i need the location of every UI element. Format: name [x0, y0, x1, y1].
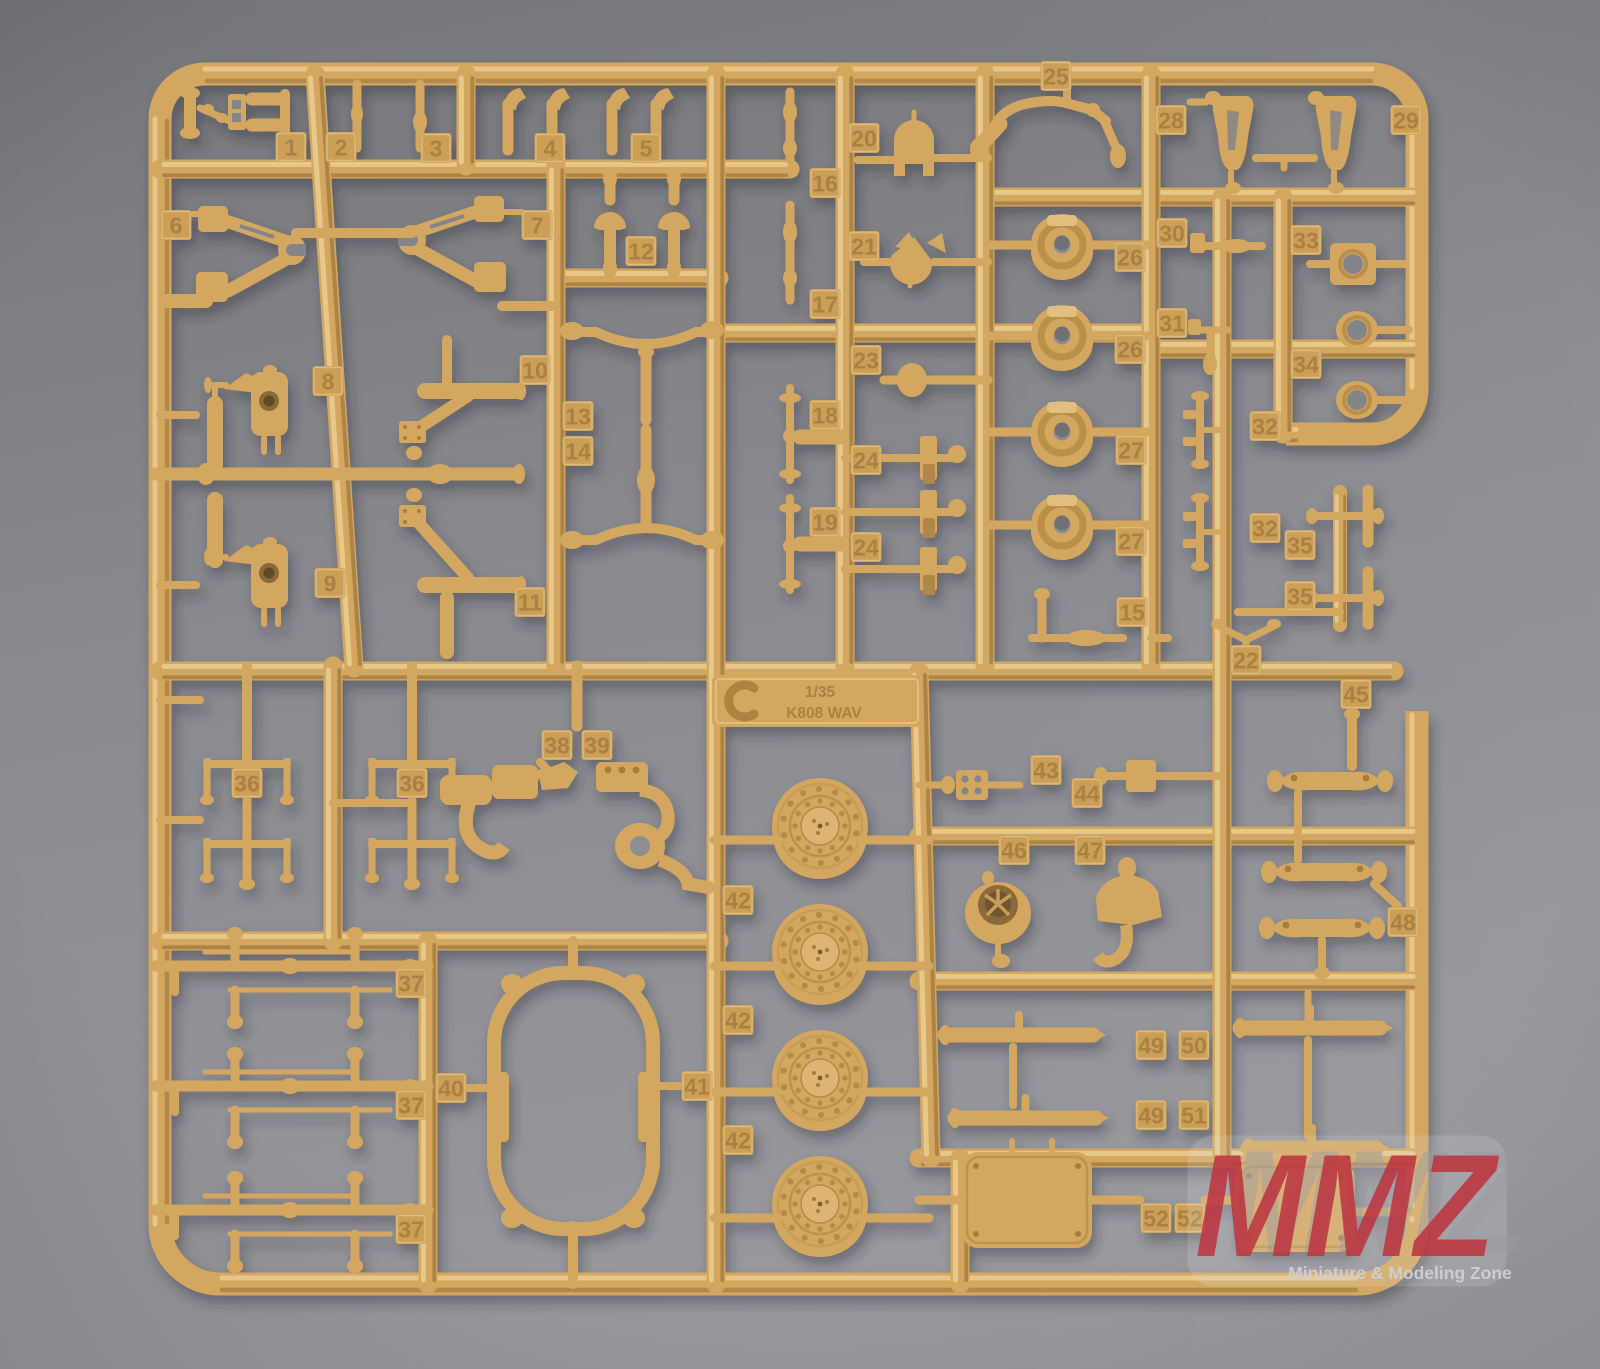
- svg-text:26: 26: [1117, 336, 1143, 362]
- svg-text:6: 6: [170, 212, 183, 238]
- svg-text:19: 19: [812, 509, 838, 535]
- svg-text:14: 14: [565, 438, 591, 464]
- svg-text:33: 33: [1293, 227, 1319, 253]
- svg-text:50: 50: [1181, 1032, 1207, 1058]
- svg-text:37: 37: [398, 1092, 424, 1118]
- svg-text:41: 41: [684, 1073, 710, 1099]
- svg-text:24: 24: [853, 534, 879, 560]
- svg-text:27: 27: [1118, 528, 1144, 554]
- svg-text:52: 52: [1143, 1205, 1169, 1231]
- svg-text:27: 27: [1118, 437, 1144, 463]
- svg-text:16: 16: [812, 170, 838, 196]
- svg-text:34: 34: [1293, 351, 1319, 377]
- svg-text:11: 11: [518, 589, 543, 615]
- svg-text:20: 20: [851, 125, 877, 151]
- svg-text:7: 7: [531, 212, 544, 238]
- svg-text:39: 39: [584, 732, 610, 758]
- svg-text:24: 24: [853, 447, 879, 473]
- svg-text:26: 26: [1117, 244, 1143, 270]
- svg-text:8: 8: [322, 368, 335, 394]
- svg-text:2: 2: [335, 134, 348, 160]
- svg-text:21: 21: [851, 233, 877, 259]
- svg-text:25: 25: [1043, 63, 1069, 89]
- svg-text:32: 32: [1252, 515, 1278, 541]
- svg-text:45: 45: [1343, 681, 1369, 707]
- svg-text:40: 40: [438, 1075, 464, 1101]
- svg-text:13: 13: [565, 403, 591, 429]
- svg-text:10: 10: [522, 357, 548, 383]
- svg-text:1/35: 1/35: [805, 684, 836, 701]
- svg-text:31: 31: [1159, 310, 1185, 336]
- svg-text:17: 17: [812, 291, 838, 317]
- svg-text:46: 46: [1001, 837, 1027, 863]
- svg-text:37: 37: [398, 970, 424, 996]
- svg-text:37: 37: [398, 1216, 424, 1242]
- svg-text:15: 15: [1119, 599, 1145, 625]
- svg-text:Miniature & Modeling Zone: Miniature & Modeling Zone: [1288, 1263, 1512, 1283]
- svg-text:18: 18: [812, 402, 838, 428]
- svg-text:38: 38: [544, 732, 570, 758]
- svg-text:44: 44: [1074, 780, 1100, 806]
- svg-text:35: 35: [1287, 583, 1313, 609]
- svg-text:30: 30: [1159, 220, 1185, 246]
- svg-text:36: 36: [399, 770, 425, 796]
- svg-text:23: 23: [853, 347, 879, 373]
- svg-text:42: 42: [725, 887, 751, 913]
- svg-text:36: 36: [234, 770, 260, 796]
- svg-text:43: 43: [1033, 757, 1059, 783]
- svg-text:1: 1: [285, 134, 298, 160]
- svg-text:49: 49: [1138, 1032, 1164, 1058]
- svg-text:4: 4: [544, 135, 557, 161]
- svg-text:12: 12: [628, 238, 654, 264]
- svg-text:28: 28: [1158, 107, 1184, 133]
- svg-text:5: 5: [640, 135, 653, 161]
- svg-text:9: 9: [324, 570, 337, 596]
- svg-text:35: 35: [1287, 532, 1313, 558]
- svg-text:29: 29: [1393, 107, 1419, 133]
- svg-text:3: 3: [430, 135, 443, 161]
- svg-text:22: 22: [1233, 647, 1259, 673]
- svg-text:47: 47: [1077, 837, 1103, 863]
- svg-text:48: 48: [1390, 909, 1416, 935]
- svg-text:42: 42: [725, 1007, 751, 1033]
- svg-text:42: 42: [725, 1127, 751, 1153]
- svg-text:49: 49: [1138, 1102, 1164, 1128]
- svg-text:K808 WAV: K808 WAV: [786, 705, 862, 722]
- svg-text:32: 32: [1252, 413, 1278, 439]
